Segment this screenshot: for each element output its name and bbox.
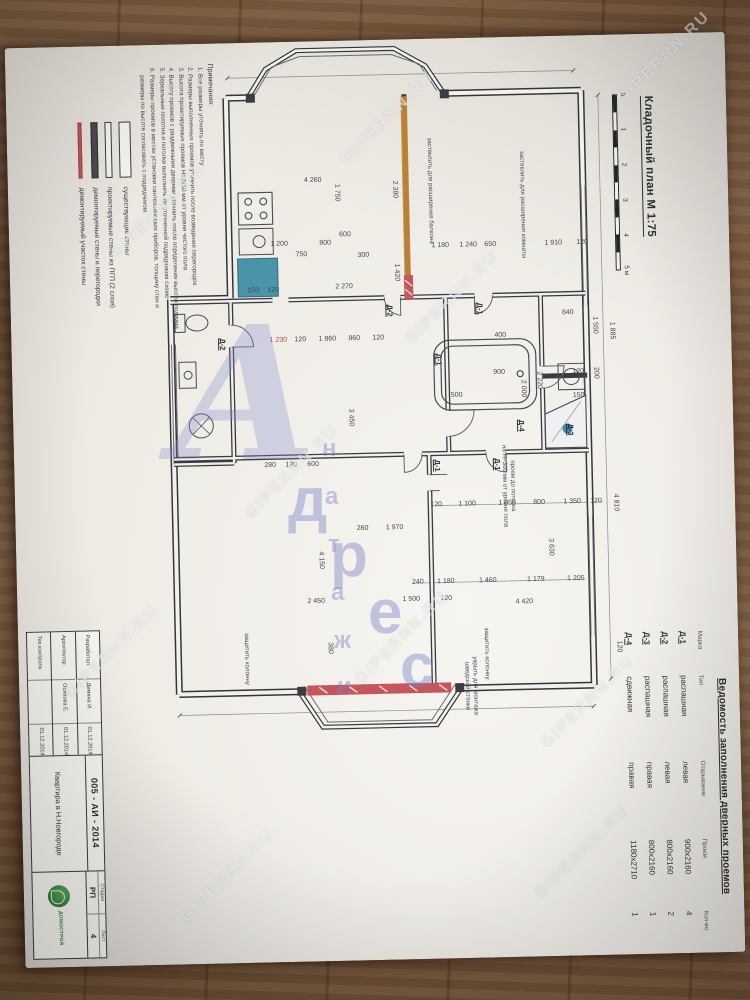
plan-label-dim: 120	[576, 239, 588, 248]
plan-label-dim: 120	[267, 287, 279, 296]
stage-sheet-row: Стадия РП Лист 4	[85, 871, 106, 957]
sheet-cell: Лист 4	[87, 914, 106, 957]
plan-label-dim: 380	[325, 642, 334, 654]
plan-label-dim: 1 500	[402, 596, 420, 605]
plan-label-dim: 840	[562, 309, 574, 318]
plan-label-dim: 200	[591, 367, 600, 379]
plan-label-note: застеклить для расширения комнаты	[517, 151, 527, 258]
plan-label-dim: 1 860	[318, 335, 336, 344]
plan-label-dim: 120	[440, 595, 452, 604]
title-block-right: Стадия РП Лист 4 ДОМОСТРОЙ	[32, 871, 106, 959]
legend-swatch	[90, 122, 98, 178]
paper-sheet: Кладочный план М 1:75 012345 м Ведомость…	[5, 32, 746, 968]
drawing-sheet: Кладочный план М 1:75 012345 м Ведомость…	[5, 32, 746, 968]
signature-name: Осипова Е.	[52, 680, 76, 725]
plan-label-dim: 1 240	[459, 241, 477, 250]
legend-label: проектируемые стены из ПГП (2 слоя)	[106, 187, 116, 308]
plan-label-dim: 2 380	[389, 181, 398, 199]
plan-label-dim: 1 200	[270, 241, 288, 250]
plan-label-dim: 600	[307, 461, 319, 470]
plan-label-dim: 240	[412, 579, 424, 588]
plan-label-dim: 800	[319, 240, 331, 249]
plan-label-mark: Д-3	[566, 423, 576, 435]
title-block: РазработалДемина И.01.12.2014АрхитекторО…	[26, 630, 107, 960]
plan-label-dim: 300	[358, 252, 370, 261]
plan-label-dim: 120	[614, 641, 623, 653]
plan-label-dim: 1 100	[458, 500, 476, 509]
legend-swatch	[78, 123, 83, 179]
signature-date: 01.12.2014	[53, 724, 77, 757]
plan-label-mark: Д-4	[517, 420, 527, 432]
plan-label-note: укрыть для монтажа шведской стенки	[463, 656, 480, 715]
project-code: 005 - АИ - 2014	[85, 755, 105, 870]
plan-label-note: проем до потолка на Н=300 мм от уровня п…	[500, 445, 517, 528]
plan-label-dim: 1 420	[391, 264, 400, 282]
plan-label-dim: 1 970	[386, 524, 404, 533]
plan-label-dim: 1 910	[544, 239, 562, 248]
plan-label-dim: 120	[572, 368, 584, 377]
legend-label: демонтируемые стены и перегородки	[92, 187, 102, 306]
plan-label-dim: 500	[451, 392, 463, 401]
stage-cell: Стадия РП	[86, 871, 105, 914]
plan-label-dim: 4 810	[611, 494, 620, 512]
plan-label-dim: 260	[357, 525, 369, 534]
legend-swatch-sw-demo	[90, 122, 98, 178]
plan-label-dim: 3 450	[346, 409, 355, 427]
plan-label-note: застеклить для расширения балкона	[425, 137, 435, 243]
plan-label-dim: 1 050	[498, 499, 516, 508]
plan-label-dim: 1 750	[331, 184, 340, 202]
legend-label: существующие стены	[122, 186, 131, 255]
legend-swatch-sw-pgp	[104, 122, 112, 178]
plan-label-dim: 120	[430, 501, 442, 510]
sheet-value: 4	[87, 914, 99, 957]
plan-label-dim: 900	[493, 369, 505, 378]
plan-label-dim: 1 205	[567, 575, 585, 584]
signature-name	[28, 680, 52, 725]
plan-label-dim: 120	[590, 497, 602, 506]
stage-value: РП	[86, 871, 98, 913]
title-block-signatures: РазработалДемина И.01.12.2014АрхитекторО…	[27, 631, 102, 757]
company-logo-icon	[48, 885, 70, 907]
plan-label-dim: 2 220	[534, 371, 543, 389]
company-logo-caption: ДОМОСТРОЙ	[57, 911, 63, 945]
plan-label-dim: 2 450	[307, 598, 325, 607]
project-name: Квартира в Н.Новгороде	[30, 756, 88, 872]
legend-swatch-sw-red	[78, 123, 83, 179]
plan-label-mark: Д-1	[475, 302, 485, 314]
signature-row: РазработалДемина И.01.12.2014	[75, 631, 102, 755]
plan-label-note: защитить колонну	[242, 633, 251, 685]
plan-label-dim: 2 270	[335, 283, 353, 292]
signature-role: Разработал	[76, 631, 100, 680]
plan-label-dim: 1 885	[607, 322, 616, 340]
plan-label-dim: 3 630	[546, 538, 555, 556]
title-block-main: 005 - АИ - 2014 Квартира в Н.Новгороде	[30, 755, 105, 873]
plan-label-dim: 150	[573, 392, 585, 401]
signature-date: 01.12.2014	[29, 724, 53, 757]
plan-label-dim: 1 180	[431, 242, 449, 251]
plan-label-mark: Д-1	[434, 353, 444, 365]
plan-label-dim: 800	[533, 499, 545, 508]
plan-label-dim: 4 150	[316, 551, 325, 569]
legend-item: проектируемые стены из ПГП (2 слоя)	[104, 122, 118, 422]
signature-name: Демина И.	[77, 679, 101, 724]
plan-label-dim: 750	[295, 251, 307, 260]
stage-label: Стадия	[97, 871, 105, 913]
plan-label-mark: Д-2	[218, 338, 228, 350]
legend-swatch	[118, 121, 131, 177]
legend-swatch	[104, 122, 112, 178]
plan-label-mark: Д-1	[432, 459, 442, 471]
plan-label-dim: 400	[494, 332, 506, 341]
plan-label-dim: 1 350	[563, 498, 581, 507]
plan-label-dim: 120	[285, 461, 297, 470]
notes-list: Все размеры уточнять по местуРазмеры вып…	[137, 64, 210, 333]
legend-label: демонтируемый участок стены	[78, 188, 87, 286]
plan-label-dim: 1 180	[437, 578, 455, 587]
legend: существующие стеныпроектируемые стены из…	[69, 121, 137, 422]
plan-label-dim: 2 000	[518, 380, 527, 398]
signature-date: 01.12.2014	[78, 723, 102, 756]
plan-label-dim: 1 550	[590, 316, 599, 334]
notes-block: Примечания: Все размеры уточнять по мест…	[137, 64, 219, 334]
company-logo-cell: ДОМОСТРОЙ	[32, 872, 87, 959]
signature-row: Тех.контроль01.12.2014	[27, 632, 53, 755]
signature-role: Тех.контроль	[27, 632, 51, 681]
plan-label-dim: 1 460	[479, 577, 497, 586]
plan-label-dim: 150	[247, 287, 259, 296]
plan-label-dim: 600	[339, 231, 351, 240]
legend-item: демонтируемый участок стены	[76, 123, 90, 423]
plan-label-red: 1 230	[270, 337, 288, 346]
plan-label-dim: 4 260	[304, 177, 322, 186]
plan-label-dim: 120	[294, 336, 306, 345]
legend-swatch-sw-exist	[118, 121, 131, 177]
plan-label-dim: 120	[372, 334, 384, 343]
sheet-label: Лист	[98, 914, 106, 957]
signature-role: Архитектор	[51, 632, 75, 681]
plan-label-dim: 860	[348, 335, 360, 344]
photo-of-floor-plan: Кладочный план М 1:75 012345 м Ведомость…	[0, 0, 750, 1000]
plan-label-dim: 1 179	[527, 576, 545, 585]
legend-item: демонтируемые стены и перегородки	[90, 122, 104, 422]
plan-label-note: защитить колонну	[482, 627, 491, 679]
plan-label-dim: 280	[264, 462, 276, 471]
plan-label-mark: Д-2	[385, 305, 395, 317]
plan-label-dim: 650	[484, 241, 496, 250]
signature-row: АрхитекторОсипова Е.01.12.2014	[50, 632, 77, 756]
plan-label-dim: 4 420	[516, 598, 534, 607]
